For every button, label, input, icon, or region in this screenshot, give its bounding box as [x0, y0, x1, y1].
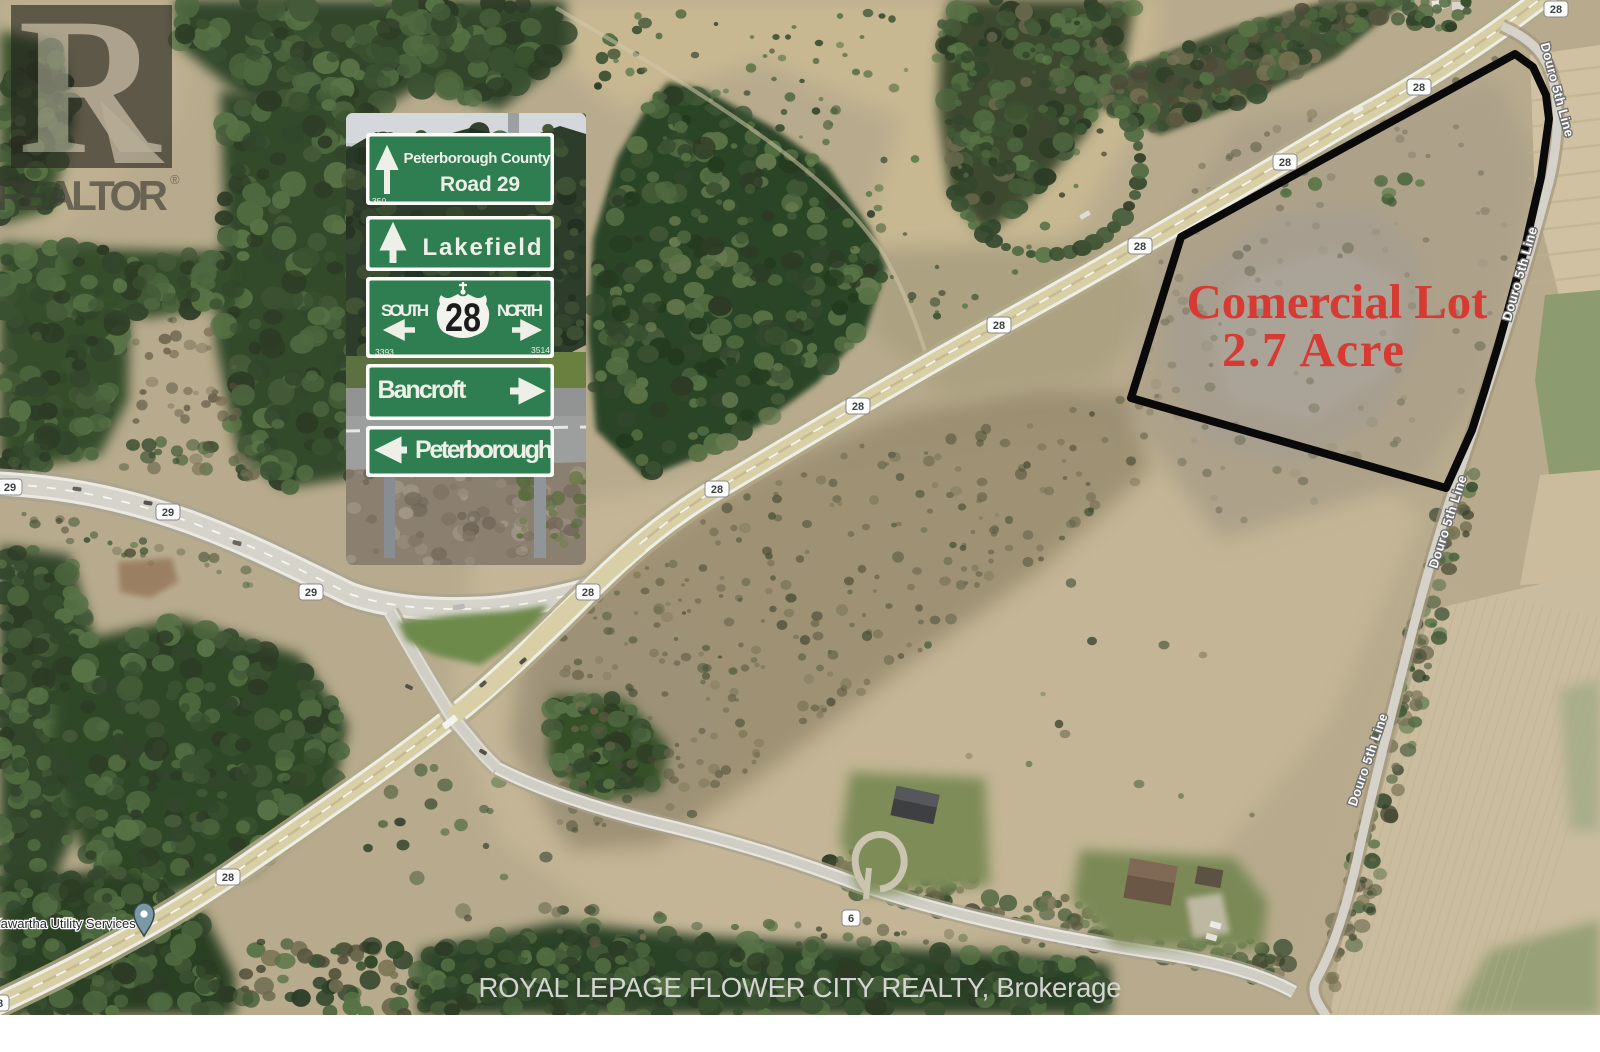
svg-text:®: ® — [170, 172, 180, 187]
svg-text:Bancroft: Bancroft — [378, 376, 468, 404]
svg-text:SOUTH: SOUTH — [381, 301, 429, 320]
svg-text:Peterborough: Peterborough — [415, 436, 553, 464]
svg-text:2.7 Acre: 2.7 Acre — [1222, 322, 1404, 377]
svg-text:28: 28 — [711, 484, 723, 496]
svg-text:3514: 3514 — [531, 345, 550, 355]
svg-text:28: 28 — [0, 998, 3, 1010]
svg-text:28: 28 — [993, 320, 1005, 332]
svg-text:Peterborough County: Peterborough County — [404, 150, 552, 167]
svg-text:NORTH: NORTH — [497, 301, 543, 320]
svg-text:350: 350 — [372, 196, 386, 206]
svg-text:28: 28 — [1550, 4, 1562, 16]
svg-text:29: 29 — [305, 587, 317, 599]
svg-text:28: 28 — [222, 872, 234, 884]
svg-text:28: 28 — [1134, 241, 1146, 253]
svg-text:6: 6 — [848, 913, 854, 925]
svg-text:R: R — [18, 0, 162, 195]
svg-text:28: 28 — [1279, 157, 1291, 169]
svg-text:29: 29 — [4, 482, 16, 494]
svg-text:3393: 3393 — [375, 347, 394, 357]
svg-text:28: 28 — [852, 401, 864, 413]
svg-text:Comercial Lot: Comercial Lot — [1187, 274, 1489, 329]
svg-text:28: 28 — [582, 587, 594, 599]
svg-text:29: 29 — [162, 507, 174, 519]
svg-text:Road 29: Road 29 — [440, 173, 520, 196]
svg-text:28: 28 — [445, 296, 481, 340]
svg-text:ROYAL LEPAGE FLOWER CITY REALT: ROYAL LEPAGE FLOWER CITY REALTY, Brokera… — [479, 972, 1122, 1003]
svg-text:REALTOR: REALTOR — [0, 172, 168, 219]
svg-text:Lakefield: Lakefield — [423, 234, 542, 261]
svg-text:Kawartha Utility Services: Kawartha Utility Services — [0, 916, 136, 931]
svg-text:28: 28 — [1413, 82, 1425, 94]
